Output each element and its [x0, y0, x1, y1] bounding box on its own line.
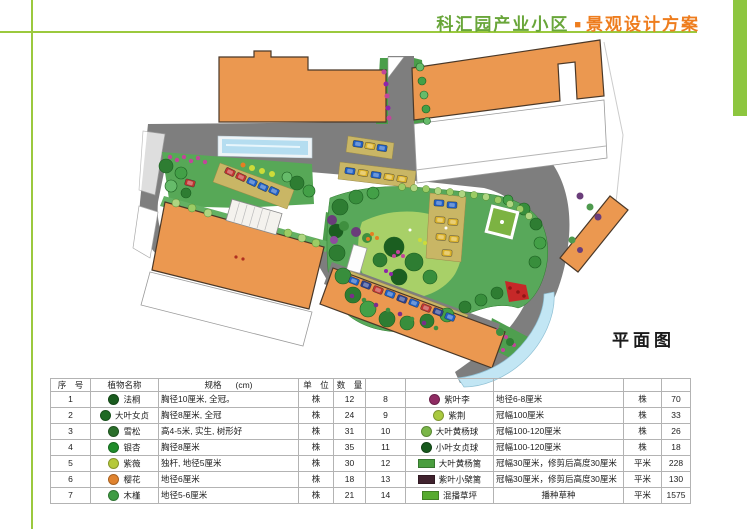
plant-name-cell: 大叶黄杨篱 — [406, 456, 494, 472]
plant-name-cell: 木槿 — [91, 488, 159, 504]
plant-number: 6 — [51, 472, 91, 488]
plant-name: 大叶黄杨篱 — [439, 458, 482, 468]
empty-header-cell — [494, 379, 624, 392]
plant-symbol-icon — [108, 426, 119, 437]
plant-table-row: 8紫叶李地径6-8厘米株70 — [366, 392, 691, 408]
header-plant-name: 植物名称 — [91, 379, 159, 392]
empty-header-cell — [366, 379, 406, 392]
plan-view-label: 平面图 — [612, 326, 675, 351]
plant-unit: 株 — [299, 488, 334, 504]
plant-symbol-icon — [108, 442, 119, 453]
plant-spec: 胸径8厘米, 全冠 — [159, 408, 299, 424]
plant-name: 紫荆 — [448, 410, 465, 420]
plant-symbol-icon — [108, 474, 119, 485]
plant-qty: 31 — [334, 424, 366, 440]
water-pool — [218, 136, 312, 158]
plant-table-header-row: 序 号 植物名称 规格(cm) 单 位 数 量 — [51, 379, 366, 392]
plant-spec: 独杆, 地径5厘米 — [159, 456, 299, 472]
plant-name: 法桐 — [123, 394, 140, 404]
plant-qty: 26 — [662, 424, 691, 440]
plant-name: 樱花 — [123, 474, 140, 484]
plant-unit: 株 — [624, 392, 662, 408]
plant-table-right: 8紫叶李地径6-8厘米株709紫荆冠幅100厘米株3310大叶黄杨球冠幅100-… — [365, 378, 691, 504]
plant-name-cell: 大叶女贞 — [91, 408, 159, 424]
plant-table-row: 6樱花地径6厘米株18 — [51, 472, 366, 488]
plant-unit: 平米 — [624, 488, 662, 504]
plant-spec: 冠幅30厘米，修剪后高度30厘米 — [494, 472, 624, 488]
plant-spec: 高4-5米, 实生, 树形好 — [159, 424, 299, 440]
plant-spec: 播种草种 — [494, 488, 624, 504]
plant-number: 14 — [366, 488, 406, 504]
plant-name-cell: 雪松 — [91, 424, 159, 440]
plant-name-cell: 紫薇 — [91, 456, 159, 472]
building-north-west — [219, 51, 386, 122]
plant-table-left: 序 号 植物名称 规格(cm) 单 位 数 量 1法桐胸径10厘米, 全冠。株1… — [50, 378, 366, 504]
plant-unit: 株 — [299, 440, 334, 456]
parcel-boundary — [604, 42, 623, 222]
plant-table-row: 2大叶女贞胸径8厘米, 全冠株24 — [51, 408, 366, 424]
plant-unit: 株 — [624, 408, 662, 424]
plant-name-cell: 银杏 — [91, 440, 159, 456]
plant-unit: 平米 — [624, 472, 662, 488]
plant-table-row: 14混播草坪播种草种平米1575 — [366, 488, 691, 504]
plant-unit: 株 — [299, 472, 334, 488]
plant-unit: 株 — [299, 408, 334, 424]
plant-name: 银杏 — [123, 442, 140, 452]
plant-name: 紫叶李 — [444, 394, 470, 404]
plant-number: 4 — [51, 440, 91, 456]
plant-name-cell: 混播草坪 — [406, 488, 494, 504]
plant-table-row: 9紫荆冠幅100厘米株33 — [366, 408, 691, 424]
plant-spec: 胸径8厘米 — [159, 440, 299, 456]
plant-number: 1 — [51, 392, 91, 408]
plant-qty: 70 — [662, 392, 691, 408]
plant-number: 10 — [366, 424, 406, 440]
plant-name-cell: 紫叶李 — [406, 392, 494, 408]
empty-header-cell — [662, 379, 691, 392]
plant-name-cell: 小叶女贞球 — [406, 440, 494, 456]
plant-qty: 1575 — [662, 488, 691, 504]
page: 科汇园产业小区■景观设计方案 — [0, 0, 750, 529]
plant-symbol-icon — [100, 410, 111, 421]
plant-spec: 冠幅30厘米，修剪后高度30厘米 — [494, 456, 624, 472]
plant-unit: 株 — [624, 424, 662, 440]
plant-table-row: 11小叶女贞球冠幅100-120厘米株18 — [366, 440, 691, 456]
plant-qty: 228 — [662, 456, 691, 472]
plant-qty: 130 — [662, 472, 691, 488]
plant-table-row: 12大叶黄杨篱冠幅30厘米，修剪后高度30厘米平米228 — [366, 456, 691, 472]
plant-number: 13 — [366, 472, 406, 488]
header-no: 序 号 — [51, 379, 91, 392]
plant-symbol-icon — [418, 459, 435, 468]
plant-symbol-icon — [421, 442, 432, 453]
plant-spec: 胸径10厘米, 全冠。 — [159, 392, 299, 408]
plant-unit: 株 — [299, 456, 334, 472]
plant-name: 雪松 — [123, 426, 140, 436]
plant-unit: 株 — [299, 424, 334, 440]
header-spec: 规格(cm) — [159, 379, 299, 392]
plant-symbol-icon — [108, 394, 119, 405]
plant-number: 9 — [366, 408, 406, 424]
plant-qty: 18 — [662, 440, 691, 456]
plant-name: 大叶黄杨球 — [436, 426, 479, 436]
plant-table-row: 13紫叶小檗篱冠幅30厘米，修剪后高度30厘米平米130 — [366, 472, 691, 488]
plant-number: 3 — [51, 424, 91, 440]
header-qty: 数 量 — [334, 379, 366, 392]
plant-qty: 12 — [334, 392, 366, 408]
plant-name: 大叶女贞 — [115, 410, 149, 420]
plant-qty: 21 — [334, 488, 366, 504]
plant-qty: 24 — [334, 408, 366, 424]
plant-qty: 35 — [334, 440, 366, 456]
plant-unit: 平米 — [624, 456, 662, 472]
plant-number: 11 — [366, 440, 406, 456]
plant-table-row: 1法桐胸径10厘米, 全冠。株12 — [51, 392, 366, 408]
plant-symbol-icon — [418, 475, 435, 484]
plant-qty: 18 — [334, 472, 366, 488]
plant-name: 紫叶小檗篱 — [439, 474, 482, 484]
plant-unit: 株 — [624, 440, 662, 456]
plant-number: 2 — [51, 408, 91, 424]
plant-name-cell: 紫叶小檗篱 — [406, 472, 494, 488]
plant-name-cell: 紫荆 — [406, 408, 494, 424]
plant-symbol-icon — [433, 410, 444, 421]
plant-number: 7 — [51, 488, 91, 504]
plant-table-row: 5紫薇独杆, 地径5厘米株30 — [51, 456, 366, 472]
plant-table-row: 7木槿地径5-6厘米株21 — [51, 488, 366, 504]
plant-table-row: 4银杏胸径8厘米株35 — [51, 440, 366, 456]
plant-name: 紫薇 — [123, 458, 140, 468]
header-unit: 单 位 — [299, 379, 334, 392]
plant-unit: 株 — [299, 392, 334, 408]
plant-name-cell: 法桐 — [91, 392, 159, 408]
plant-symbol-icon — [429, 394, 440, 405]
building-east — [560, 196, 628, 272]
plant-symbol-icon — [422, 491, 439, 500]
empty-header-cell — [406, 379, 494, 392]
plant-qty: 33 — [662, 408, 691, 424]
plant-name: 混播草坪 — [443, 490, 477, 500]
plant-table-header-row-empty — [366, 379, 691, 392]
plant-symbol-icon — [421, 426, 432, 437]
plant-number: 5 — [51, 456, 91, 472]
plant-symbol-icon — [108, 458, 119, 469]
plant-number: 12 — [366, 456, 406, 472]
plant-name-cell: 大叶黄杨球 — [406, 424, 494, 440]
plant-table-row: 3雪松高4-5米, 实生, 树形好株31 — [51, 424, 366, 440]
plant-name-cell: 樱花 — [91, 472, 159, 488]
plant-table-row: 10大叶黄杨球冠幅100-120厘米株26 — [366, 424, 691, 440]
plant-spec: 冠幅100-120厘米 — [494, 440, 624, 456]
plant-spec: 地径6-8厘米 — [494, 392, 624, 408]
plant-spec: 冠幅100-120厘米 — [494, 424, 624, 440]
plant-spec: 地径6厘米 — [159, 472, 299, 488]
plant-spec: 地径5-6厘米 — [159, 488, 299, 504]
plant-number: 8 — [366, 392, 406, 408]
plant-spec: 冠幅100厘米 — [494, 408, 624, 424]
empty-header-cell — [624, 379, 662, 392]
plant-qty: 30 — [334, 456, 366, 472]
plant-name: 木槿 — [123, 490, 140, 500]
plant-name: 小叶女贞球 — [436, 442, 479, 452]
plant-symbol-icon — [108, 490, 119, 501]
